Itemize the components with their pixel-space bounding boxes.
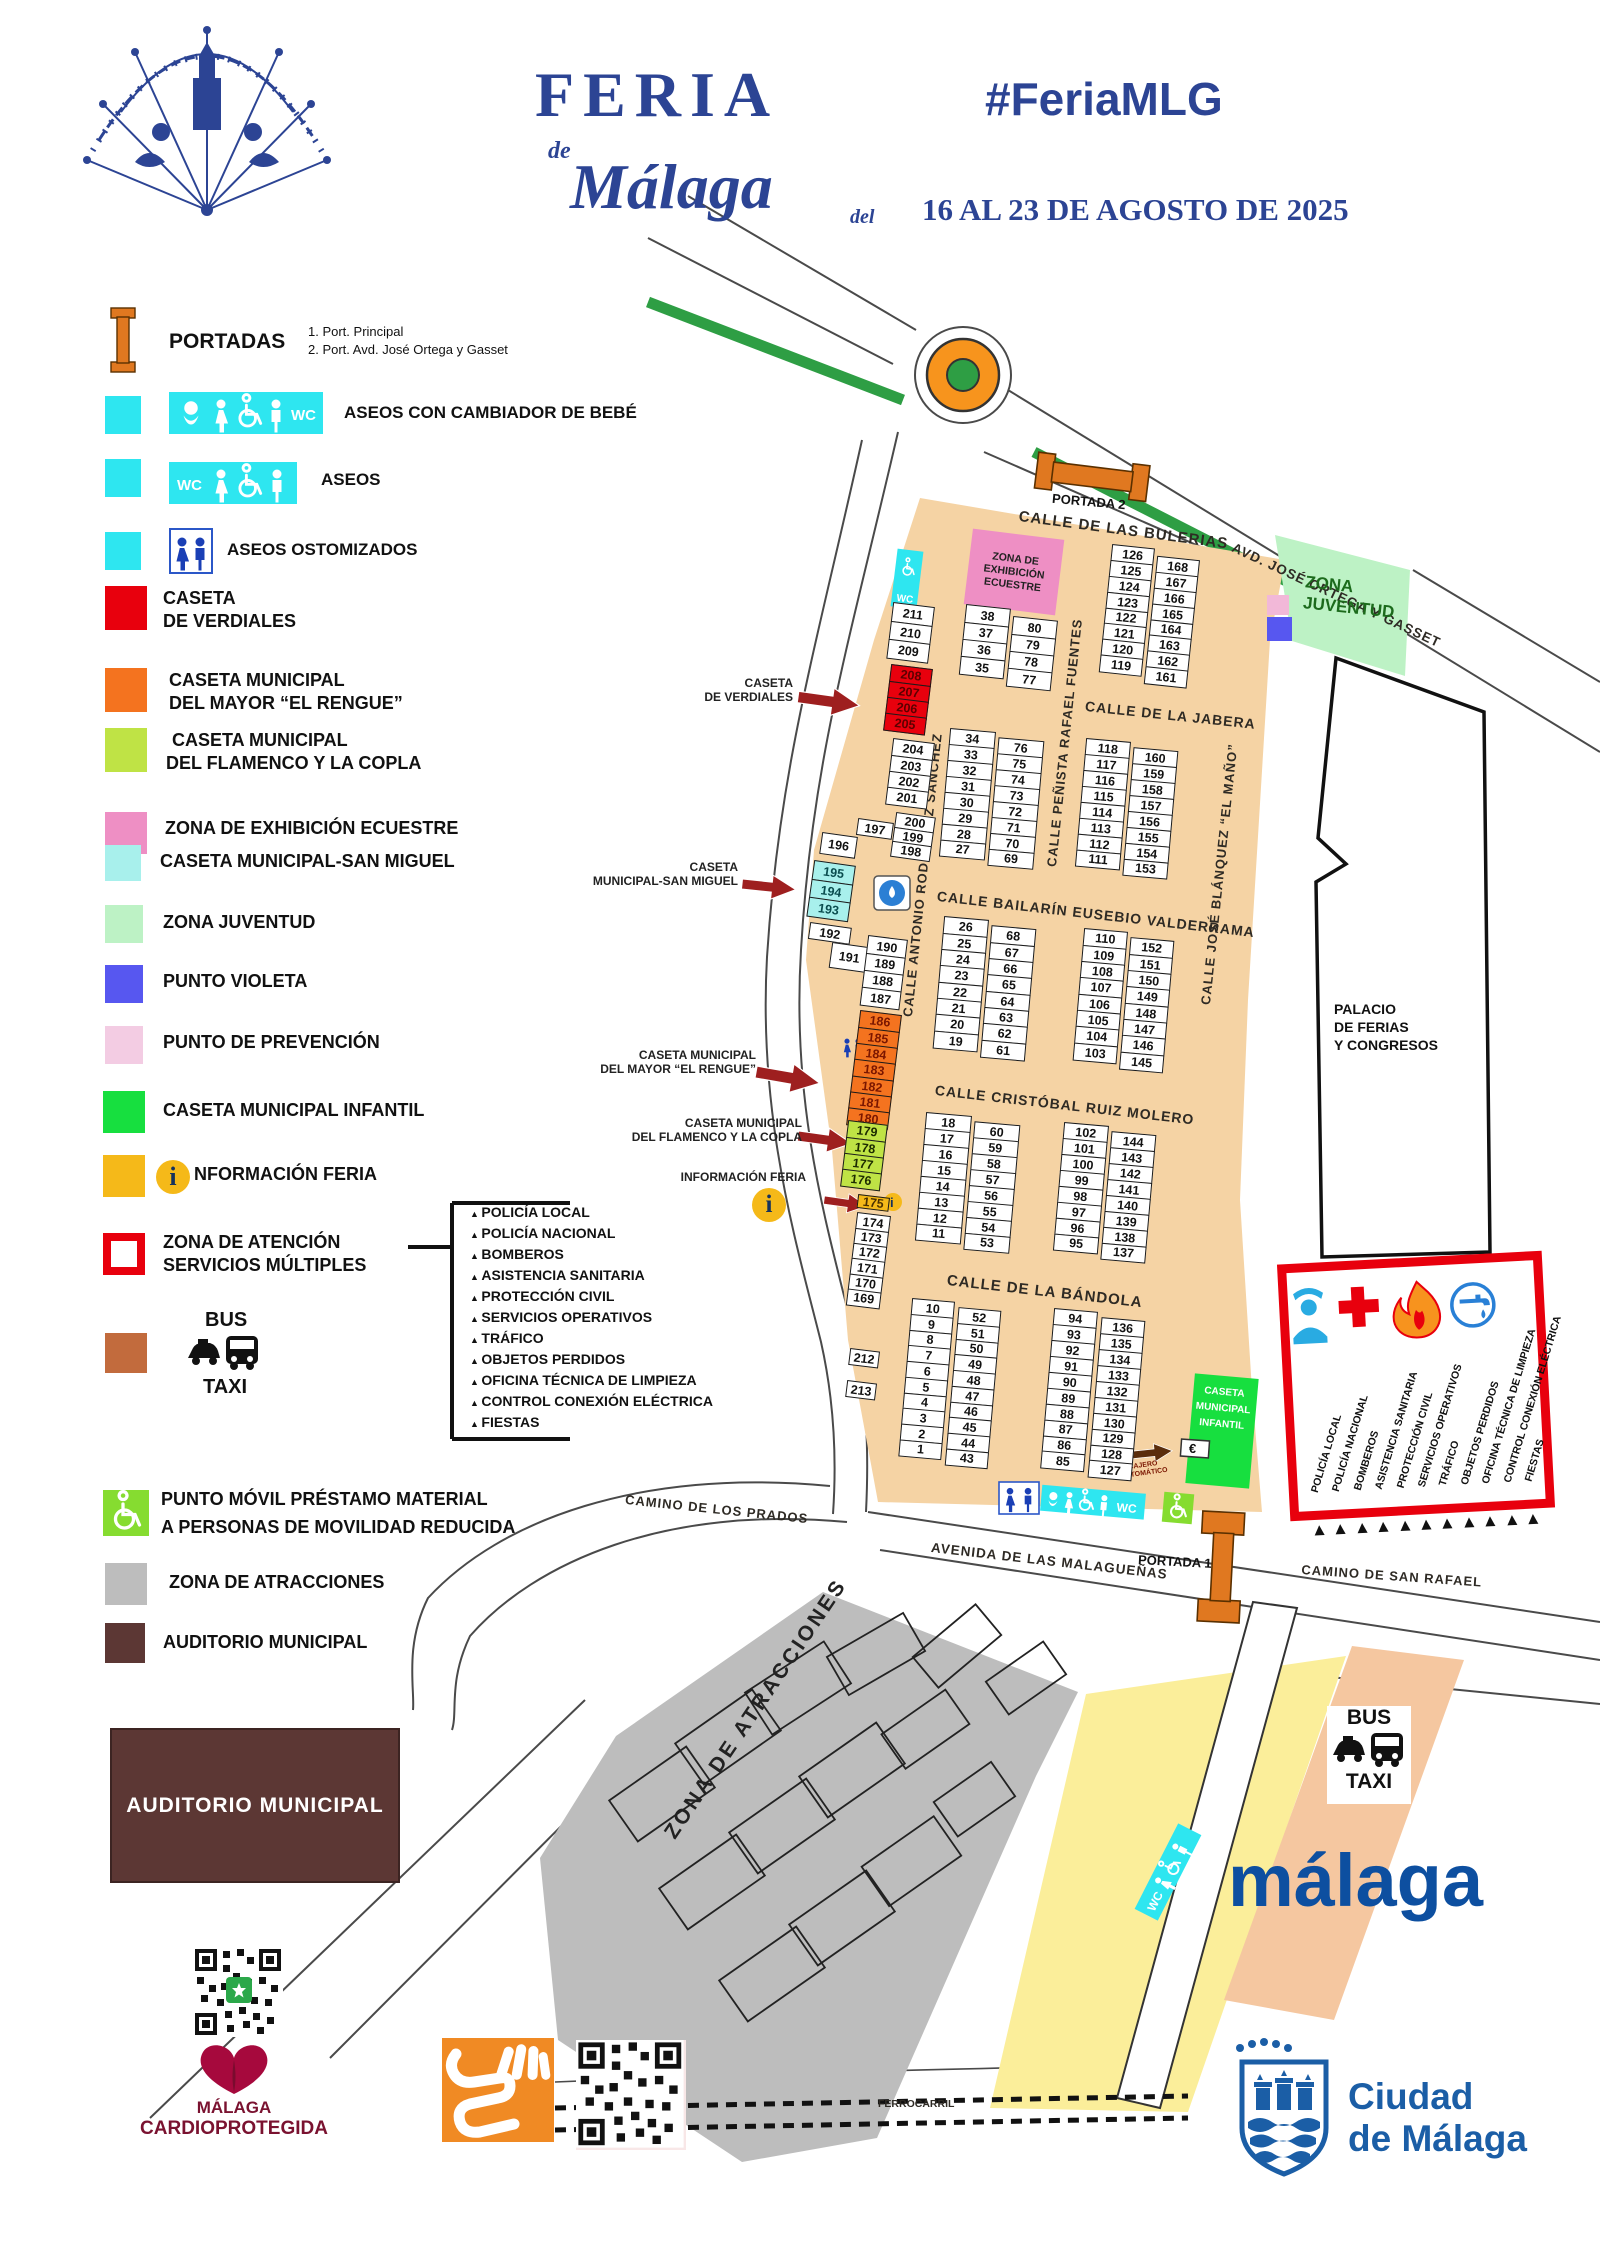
legend-label-juventud: ZONA JUVENTUD [163,912,315,933]
palacio-outline [1316,658,1490,1257]
legend-bus-label: BUS [205,1309,247,1332]
legend-swatch-flamenco [105,728,147,772]
service-item: OBJETOS PERDIDOS [481,1351,625,1367]
svg-text:WC: WC [896,593,914,606]
legend-label-flamenco-2: DEL FLAMENCO Y LA COPLA [166,753,421,774]
legend-label-rengue-1: CASETA MUNICIPAL [169,670,345,691]
legend-label-atencion-2: SERVICIOS MÚLTIPLES [163,1255,366,1276]
dates: 16 AL 23 DE AGOSTO DE 2025 [922,192,1349,228]
dates-prefix: del [850,206,874,229]
svg-text:i: i [890,1195,894,1210]
servicios-multiples-box: POLICÍA LOCAL POLICÍA NACIONAL BOMBEROS … [1282,1254,1575,1536]
legend-label-punto-movil-2: A PERSONAS DE MOVILIDAD REDUCIDA [161,1517,515,1538]
svg-text:WC: WC [291,407,316,424]
legend-label-violeta: PUNTO VIOLETA [163,971,307,992]
legend-label-prevencion: PUNTO DE PREVENCIÓN [163,1032,380,1053]
hashtag: #FeriaMLG [985,72,1223,126]
legend-swatch-aseos [105,459,141,497]
legend-swatch-aseos-bebe [105,396,141,434]
caseta-infantil-label: CASETA MUNICIPAL INFANTIL [1190,1382,1256,1435]
legend-swatch-atencion [103,1233,145,1275]
portadas-label: PORTADAS [169,330,285,354]
feria-malaga-map-page: POLICÍA LOCAL POLICÍA NACIONAL BOMBEROS … [0,0,1600,2245]
legend-swatch-juventud [105,905,143,943]
wc-banner-yellow-zone: WC [1108,1812,1228,1932]
service-item: ASISTENCIA SANITARIA [481,1267,644,1283]
portadas-item-1: 1. Port. Principal [308,324,403,339]
restroom-icon-legend [169,528,213,574]
taxi-label-map: TAXI [1327,1770,1411,1794]
zona-ecuestre-box: ZONA DE EXHIBICIÓN ECUESTRE [964,529,1065,616]
info-i-icon: i [156,1160,190,1194]
legend-label-verdiales-1: CASETA [163,588,236,609]
legend-label-auditorio: AUDITORIO MUNICIPAL [163,1632,367,1653]
legend-label-aseos: ASEOS [321,470,381,490]
fountain-icon [874,876,910,910]
cardioprotegida-heart-logo [192,2038,276,2102]
legend-label-sanmiguel: CASETA MUNICIPAL-SAN MIGUEL [160,851,455,872]
roundabout [915,327,1011,423]
legend-label-atencion-1: ZONA DE ATENCIÓN [163,1232,340,1253]
service-item: SERVICIOS OPERATIVOS [481,1309,652,1325]
service-item: OFICINA TÉCNICA DE LIMPIEZA [481,1372,696,1388]
legend-swatch-violeta [105,965,143,1003]
legend-label-atracciones: ZONA DE ATRACCIONES [169,1572,384,1593]
callout-verdiales: CASETADE VERDIALES [688,676,793,704]
legend-label-aseos-bebe: ASEOS CON CAMBIADOR DE BEBÉ [344,403,637,423]
service-item: CONTROL CONEXIÓN ELÉCTRICA [481,1393,713,1409]
movilidad-reducida-map-icon [1162,1492,1195,1525]
feria-title-city: Málaga [570,150,773,224]
ciudad-label-2: de Málaga [1348,2118,1527,2160]
bus-taxi-icon-legend [186,1334,262,1372]
fairground-area [806,498,1285,1512]
legend-swatch-prevencion [105,1026,143,1064]
cajero-icon: € [1180,1439,1209,1458]
callout-sanmiguel: CASETAMUNICIPAL-SAN MIGUEL [570,860,738,888]
restroom-icon-map [999,1482,1039,1514]
legend-swatch-bus-taxi [105,1333,147,1373]
wc-banner-bebe-icon: WC [169,392,323,434]
legend-swatch-rengue [105,668,147,712]
info-i-icon-map: i [752,1188,786,1222]
punto-prevencion-marker [1267,595,1289,615]
feria-title: FERIA [535,58,779,132]
service-item: BOMBEROS [481,1246,563,1262]
cardioprotegida-text: MÁLAGA CARDIOPROTEGIDA [114,2098,354,2140]
callout-flamenco: CASETA MUNICIPALDEL FLAMENCO Y LA COPLA [626,1116,802,1144]
sign-language-logo [442,2038,554,2142]
legend-label-flamenco-1: CASETA MUNICIPAL [172,730,348,751]
legend-label-infantil: CASETA MUNICIPAL INFANTIL [163,1100,424,1121]
legend-swatch-informacion [103,1155,145,1197]
cardio-qr-code [193,1947,285,2037]
portadas-item-2: 2. Port. Avd. José Ortega y Gasset [308,342,508,357]
street-ferrocarril: FERROCARRIL [878,2098,954,2110]
service-item: POLICÍA LOCAL [481,1204,589,1220]
svg-text:WC: WC [1116,1500,1137,1516]
info-point-marker: i [884,1193,902,1211]
callout-rengue: CASETA MUNICIPALDEL MAYOR “EL RENGUE” [592,1048,756,1076]
ciudad-label-1: Ciudad [1348,2076,1473,2118]
legend-swatch-ostomizados [105,532,141,570]
legend-taxi-label: TAXI [203,1376,247,1399]
feria-qr-code [576,2040,686,2150]
svg-text:€: € [1188,1441,1196,1456]
auditorio-municipal-building: AUDITORIO MUNICIPAL [110,1728,400,1883]
legend-swatch-auditorio [105,1623,145,1663]
punto-violeta-marker [1267,617,1292,641]
feria-title-de: de [548,138,571,165]
malaga-city-logo: málaga [1228,1838,1483,1923]
legend-label-verdiales-2: DE VERDIALES [163,611,296,632]
legend-label-ostomizados: ASEOS OSTOMIZADOS [227,540,418,560]
legend-swatch-punto-movil [103,1490,149,1536]
svg-text:WC: WC [177,477,202,494]
wc-banner-icon: WC [169,462,297,504]
legend-label-punto-movil-1: PUNTO MÓVIL PRÉSTAMO MATERIAL [161,1489,488,1510]
bus-label-map: BUS [1327,1706,1411,1730]
legend-label-rengue-2: DEL MAYOR “EL RENGUE” [169,693,403,714]
service-item: TRÁFICO [481,1330,543,1346]
legend-swatch-verdiales [105,586,147,630]
legend-swatch-sanmiguel [105,845,141,881]
auditorio-building-label: AUDITORIO MUNICIPAL [126,1794,383,1818]
portadas-gate-icon [108,306,138,376]
callout-informacion: INFORMACIÓN FERIA [672,1170,806,1184]
legend-label-informacion: NFORMACIÓN FERIA [194,1164,377,1185]
palacio-label: PALACIO DE FERIAS Y CONGRESOS [1334,1000,1438,1054]
legend-swatch-infantil [103,1091,145,1133]
bus-taxi-icon-map [1331,1730,1407,1770]
service-item: FIESTAS [481,1414,539,1430]
legend-swatch-atracciones [105,1563,147,1605]
bus-taxi-station-box: BUS TAXI [1327,1706,1411,1804]
ciudad-malaga-shield-logo [1232,2036,1337,2186]
feria-fan-logo [75,12,340,217]
service-item: POLICÍA NACIONAL [481,1225,615,1241]
service-item: PROTECCIÓN CIVIL [481,1288,614,1304]
legend-label-ecuestre: ZONA DE EXHIBICIÓN ECUESTRE [165,818,458,839]
